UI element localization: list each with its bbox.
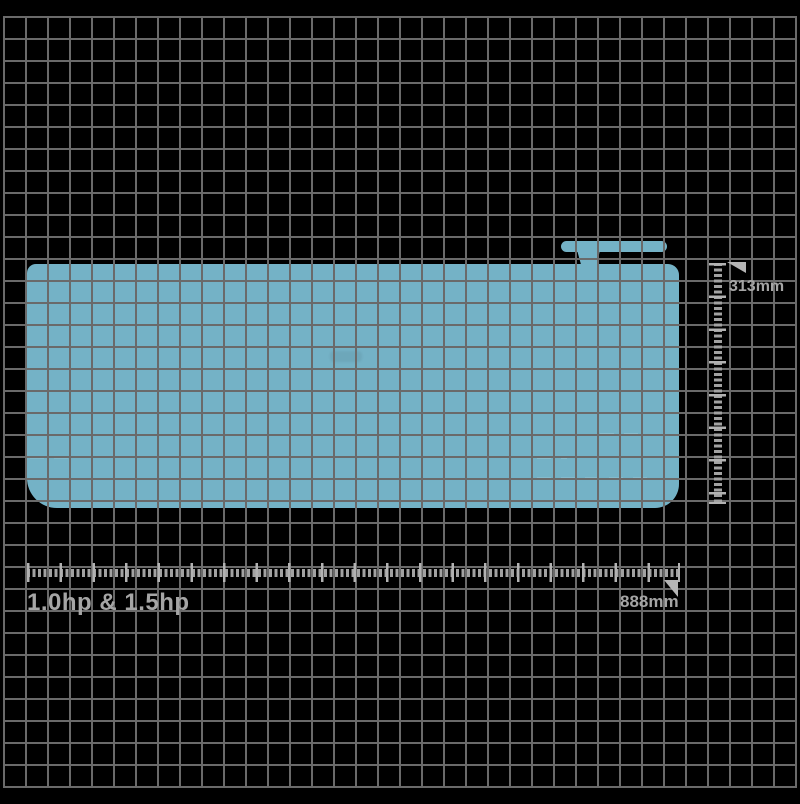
capacity-caption: 1.0hp & 1.5hp — [27, 589, 190, 617]
panel-seam-line — [537, 477, 657, 479]
pipe-handle — [561, 241, 667, 252]
logo-smudge — [330, 351, 362, 362]
height-dimension-label: 313mm — [729, 278, 784, 296]
width-ruler — [27, 563, 680, 582]
pipe-neck — [577, 250, 600, 265]
width-dimension-label: 888mm — [620, 592, 679, 612]
height-ruler — [709, 263, 726, 504]
panel-seam-line — [537, 457, 567, 459]
height-dimension-arrow-icon — [727, 262, 746, 273]
unit-body-silhouette — [27, 264, 679, 508]
panel-seam-line — [30, 457, 74, 459]
diagram-canvas: 313mm 888mm 1.0hp & 1.5hp — [0, 0, 800, 804]
panel-seam-line — [600, 433, 646, 435]
